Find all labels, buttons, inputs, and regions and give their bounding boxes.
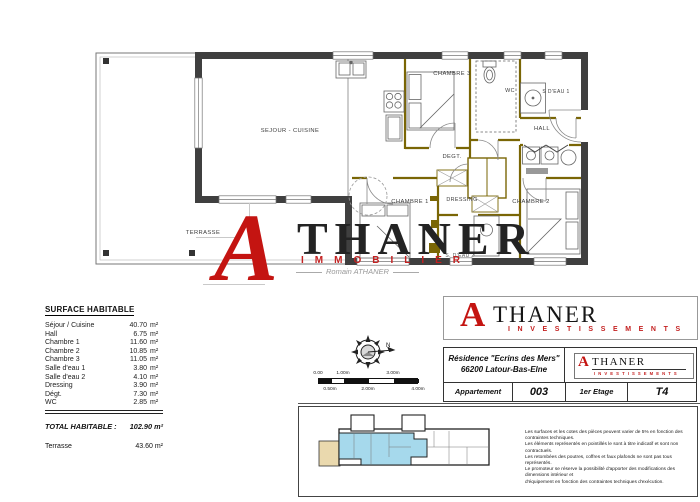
sketch-line	[196, 237, 240, 238]
sketch-line	[249, 203, 250, 218]
room-label-hall: HALL	[534, 126, 550, 132]
shower-icon-sdeau1	[521, 83, 546, 113]
room-label-wc: WC	[505, 88, 515, 94]
room-label-terrasse: TERRASSE	[186, 230, 220, 236]
room-label-chambre3: CHAMBRE 3	[433, 71, 470, 77]
wc-dashed-zone	[476, 61, 516, 132]
terrace-outline	[96, 53, 348, 264]
kitchen-icons	[336, 61, 404, 141]
shower-icon-sdeau2	[474, 216, 499, 256]
room-label-sdeau1: S D'EAU 1	[542, 89, 569, 95]
room-label-degt: DEGT.	[442, 154, 461, 160]
room-label-sdeau2: S. D'EAU 2	[445, 253, 474, 259]
room-label-dressing: DRESSING	[446, 197, 477, 203]
sketch-line	[203, 284, 265, 285]
plan-sheet: SEJOUR - CUISINE CHAMBRE 3 WC S D'EAU 1 …	[0, 0, 700, 502]
room-label-sejour: SEJOUR - CUISINE	[261, 128, 320, 134]
entrance-gap	[581, 110, 588, 142]
floor-plan: SEJOUR - CUISINE CHAMBRE 3 WC S D'EAU 1 …	[0, 0, 700, 502]
washer-icon	[561, 150, 576, 165]
room-label-chambre2: CHAMBRE 2	[512, 199, 549, 205]
terrace-posts	[103, 58, 195, 256]
room-label-chambre1: CHAMBRE 1	[391, 199, 428, 205]
double-sink-icon	[523, 147, 577, 174]
bed-icon-chambre3	[407, 72, 454, 130]
toilet-icon	[483, 61, 496, 83]
bed-icon-chambre1	[360, 203, 410, 258]
